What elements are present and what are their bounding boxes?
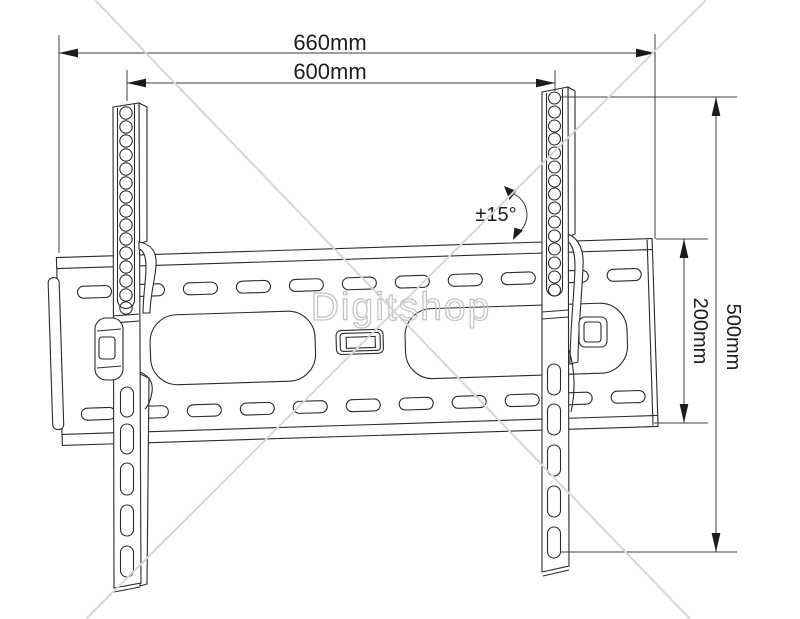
arrow-down-icon [680, 404, 689, 423]
dimension-vesa-width: 600mm [127, 59, 555, 101]
technical-drawing-page: 660mm 600mm 500mm 200mm [0, 0, 800, 619]
right-arm-side-face [568, 87, 575, 237]
dim-label-outer-width: 660mm [293, 30, 366, 55]
arrow-left-icon [59, 49, 78, 58]
arrow-up-icon [712, 97, 721, 116]
dimension-plate-height: 200mm [654, 239, 711, 423]
arrow-up-icon [680, 239, 689, 258]
left-arm-side-face [139, 103, 147, 244]
arrow-down-icon [712, 533, 721, 552]
right-arm-knob [579, 317, 607, 347]
dim-label-vesa-width: 600mm [293, 59, 366, 84]
watermark-text: Digitshop [311, 286, 492, 329]
left-arm-knob [95, 318, 123, 380]
arrow-curved-up-icon [504, 186, 517, 200]
right-vesa-arm [542, 87, 607, 576]
arrow-left-icon [127, 79, 146, 88]
arrow-right-icon [536, 79, 555, 88]
dim-label-plate-height: 200mm [689, 298, 711, 365]
dim-label-outer-height: 500mm [722, 304, 744, 371]
dimension-tilt-angle: ±15° [475, 186, 527, 240]
tv-mount-diagram: 660mm 600mm 500mm 200mm [0, 0, 800, 619]
